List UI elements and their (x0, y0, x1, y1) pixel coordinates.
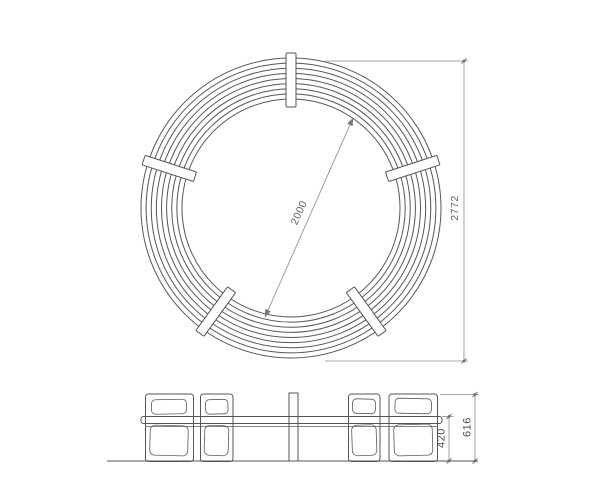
dim-label-overall-height: 616 (462, 417, 474, 437)
dim-overall-diameter: 2772 (325, 59, 468, 364)
seat-rail (141, 417, 442, 424)
leg-upper-panel (151, 399, 186, 414)
batten (286, 53, 296, 107)
plan-view: 2000 2772 (141, 53, 468, 364)
seat-ring-circle (162, 79, 421, 338)
seat-ring-circle (156, 73, 425, 342)
dim-label-overall-diameter: 2772 (449, 195, 461, 220)
leg-lower-panel (204, 425, 229, 456)
dim-line-inner-diameter (265, 118, 353, 317)
leg-lower-panel (351, 425, 377, 456)
seat-ring-circle (182, 99, 400, 317)
leg-upper-panel (205, 399, 228, 414)
leg-block-4 (389, 394, 438, 462)
leg-upper-panel (352, 399, 375, 414)
seat-ring-circle (167, 84, 416, 333)
dim-overall-height: 616 (440, 392, 479, 464)
elevation-view: 420 616 (107, 392, 479, 464)
leg-lower-panel (394, 424, 433, 456)
seat-ring-circle (172, 89, 411, 328)
seat-ring-circle (151, 68, 431, 348)
dim-label-seat-height: 420 (436, 428, 448, 448)
center-post (289, 393, 298, 461)
drawing-sheet: 2000 2772 (0, 0, 600, 500)
dim-inner-diameter: 2000 (265, 118, 353, 317)
leg-block-1 (146, 394, 194, 462)
bench-technical-drawing: 2000 2772 (0, 0, 600, 500)
leg-block-3 (349, 394, 381, 462)
seat-ring-circle (177, 94, 405, 322)
leg-block-2 (201, 394, 234, 462)
leg-upper-panel (395, 398, 432, 414)
leg-lower-panel (150, 425, 189, 456)
leg-block-outline (389, 394, 438, 462)
